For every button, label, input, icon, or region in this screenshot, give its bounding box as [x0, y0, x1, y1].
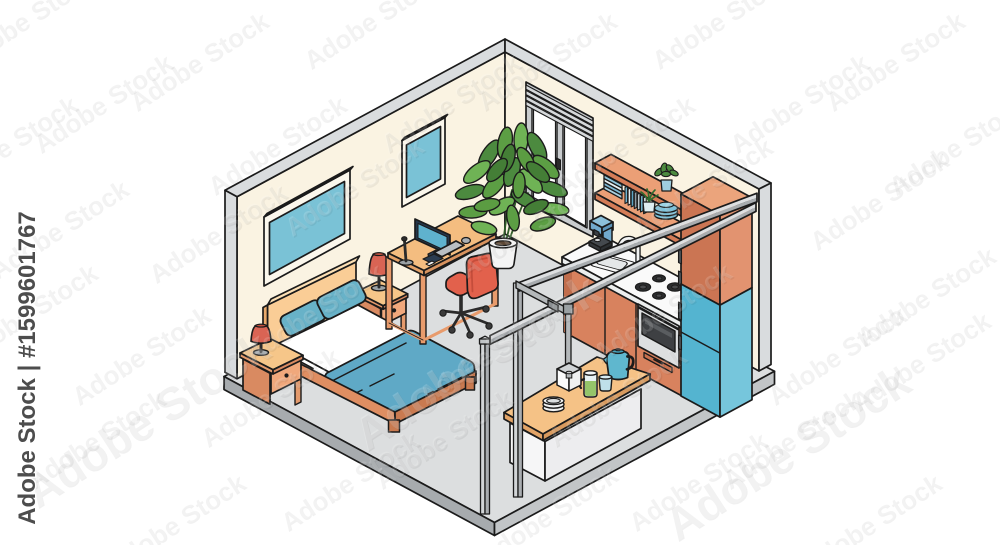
- svg-text:Adobe Stock | #1599601767: Adobe Stock | #1599601767: [14, 211, 41, 525]
